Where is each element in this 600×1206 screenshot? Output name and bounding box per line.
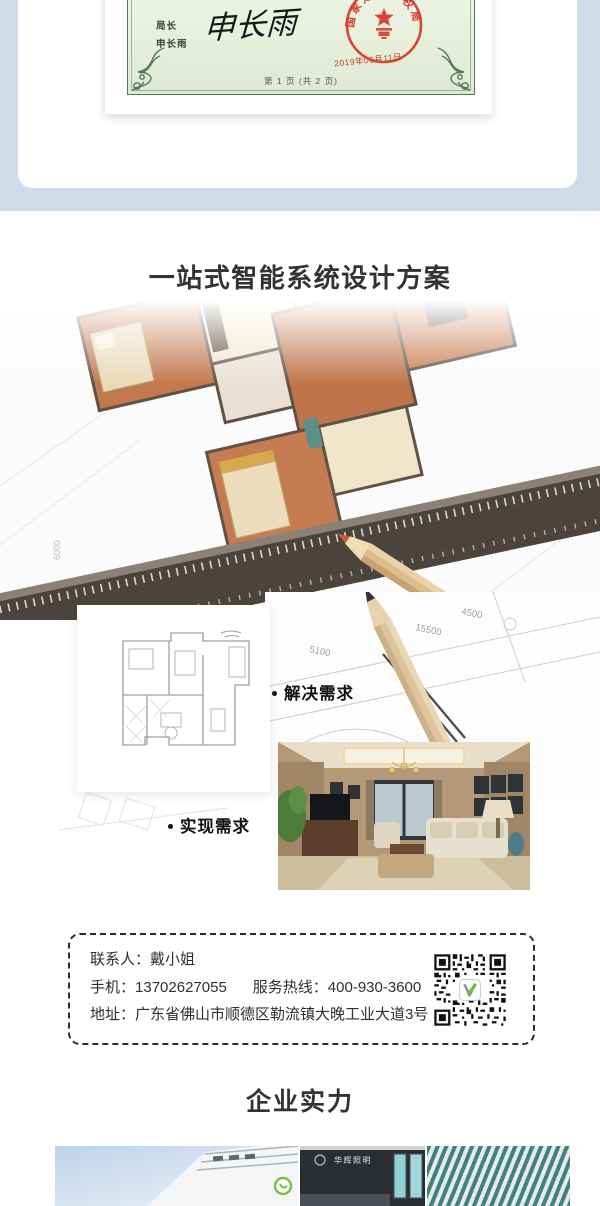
certificate-page-info: 第 1 页 (共 2 页)	[128, 75, 474, 87]
certificate-card: 局长 申长雨 申长雨 国家知识产权局 2019年06月	[18, 0, 577, 188]
step-label-solve: 解决需求	[272, 680, 354, 704]
contact-person-value: 戴小姐	[150, 951, 195, 968]
factory-photo-warehouse-roof	[427, 1146, 570, 1206]
bullet-dot	[272, 691, 277, 696]
wechat-qr-code	[432, 952, 508, 1028]
contact-address-label: 地址：	[90, 1006, 135, 1023]
step-realize-text: 实现需求	[180, 818, 250, 836]
director-signature: 申长雨	[203, 0, 297, 48]
contact-person-line: 联系人：戴小姐	[90, 946, 428, 974]
director-name: 申长雨	[156, 36, 188, 50]
contact-person-label: 联系人：	[90, 951, 150, 968]
step-label-realize: 实现需求	[168, 813, 250, 837]
patent-certificate-photo: 局长 申长雨 申长雨 国家知识产权局 2019年06月	[105, 0, 492, 114]
step-solve-text: 解决需求	[284, 685, 354, 703]
solution-title: 一站式智能系统设计方案	[0, 258, 600, 295]
plan-dimension-6000: 6000	[52, 540, 62, 560]
floorplan-overview-photo: 6000	[0, 300, 600, 620]
contact-info-box: 联系人：戴小姐 手机：13702627055服务热线：400-930-3600 …	[68, 933, 535, 1045]
strength-section-title: 企业实力	[0, 1082, 600, 1118]
contact-address-line: 地址：广东省佛山市顺德区勒流镇大晚工业大道3号	[90, 1001, 428, 1029]
director-label: 局长	[156, 18, 177, 32]
contact-lines: 联系人：戴小姐 手机：13702627055服务热线：400-930-3600 …	[90, 946, 428, 1029]
contact-hotline-label: 服务热线：	[253, 979, 328, 996]
factory-photo-building	[55, 1146, 298, 1206]
living-room-photo	[278, 742, 530, 890]
floorplan-line-drawing-card	[77, 605, 270, 792]
contact-mobile-value: 13702627055	[135, 979, 227, 996]
floorplan-line-drawing	[117, 625, 255, 753]
contact-address-value: 广东省佛山市顺德区勒流镇大晚工业大道3号	[135, 1006, 428, 1023]
contact-mobile-label: 手机：	[90, 979, 135, 996]
certificate-paper: 局长 申长雨 申长雨 国家知识产权局 2019年06月	[127, 0, 475, 95]
contact-phone-line: 手机：13702627055服务热线：400-930-3600	[90, 974, 428, 1002]
storefront-sign-text: 华辉照明	[334, 1155, 372, 1166]
contact-hotline-value: 400-930-3600	[328, 979, 421, 996]
factory-photo-storefront: 华辉照明	[300, 1146, 425, 1206]
hero-banner: 局长 申长雨 申长雨 国家知识产权局 2019年06月	[0, 0, 600, 211]
building-logo-icon	[275, 1178, 291, 1194]
bullet-dot	[168, 824, 173, 829]
